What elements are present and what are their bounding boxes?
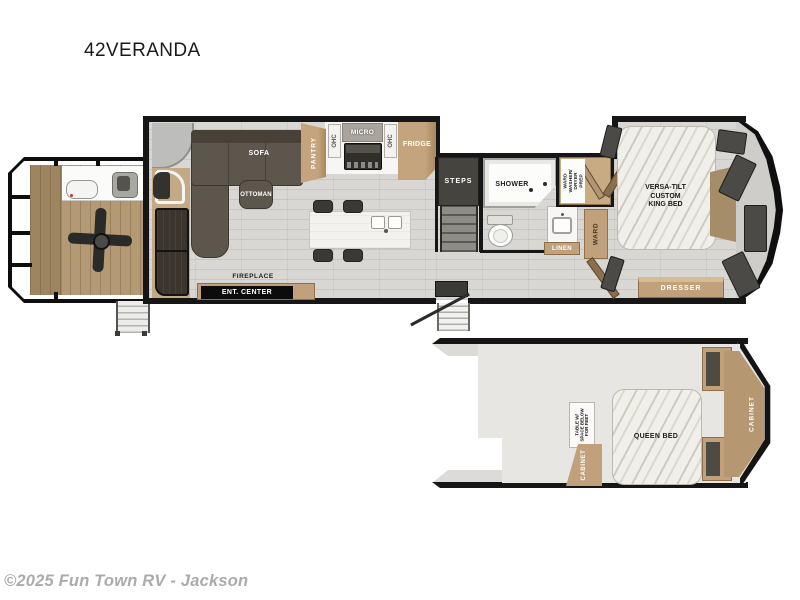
veranda-sink-basin: [117, 176, 130, 191]
page-title: 42VERANDA: [84, 40, 201, 62]
wall-bath-bottom: [480, 250, 546, 253]
bar-stool: [313, 249, 333, 262]
entry-door-divider: [157, 250, 187, 252]
ohc-right-label: OHC: [388, 134, 394, 147]
queen-bed-label: QUEEN BED: [612, 430, 700, 442]
fireplace-label: FIREPLACE: [218, 272, 288, 281]
island-sink: [388, 216, 402, 229]
stair-foot: [142, 331, 147, 336]
steps-wall-right: [479, 157, 483, 252]
bar-stool: [343, 249, 363, 262]
shelf-opening: [706, 352, 720, 386]
rail-post: [54, 292, 58, 300]
laundry-label: WARD WASHER/ DRYER PREP: [563, 169, 584, 192]
micro-label: MICRO: [342, 123, 383, 142]
shower-drain: [529, 188, 533, 192]
linen-label: LINEN: [544, 242, 580, 255]
rail-post: [10, 231, 30, 235]
rail-post: [12, 263, 32, 267]
pantry: PANTRY: [301, 123, 326, 183]
pantry-label: PANTRY: [310, 137, 317, 169]
toilet-seat: [493, 229, 508, 243]
ward-cabinet: WARD: [584, 209, 608, 259]
loft-table: TABLE W/ SPACE BELOW FOR FEET: [569, 402, 595, 448]
floorplan-image: 42VERANDA SOFA O: [0, 0, 800, 600]
entry-door: [155, 208, 189, 296]
ward-label: WARD: [593, 223, 600, 245]
king-bed-label: VERSA-TILT CUSTOM KING BED: [627, 184, 704, 210]
ohc-left-label: OHC: [332, 134, 338, 147]
veranda-stairs: [116, 301, 150, 333]
sofa-back: [191, 130, 303, 143]
bath-faucet: [561, 213, 564, 216]
wall-top-bedroom: [612, 116, 746, 122]
island-faucet: [384, 229, 388, 233]
rail-post: [54, 158, 58, 166]
loft-table-label: TABLE W/ SPACE BELOW FOR FEET: [575, 408, 589, 441]
sofa-label: SOFA: [229, 147, 289, 159]
loft-wall-top: [430, 338, 748, 344]
wall-bottom-right: [468, 298, 746, 304]
rail-post: [96, 158, 100, 166]
bath-sink: [552, 217, 572, 234]
island-sink: [371, 216, 385, 229]
rail-post: [10, 195, 30, 199]
steps-label: STEPS: [438, 157, 479, 206]
cap-window: [744, 205, 767, 252]
appliance-indicator: [70, 194, 73, 197]
ohc-right: OHC: [384, 124, 397, 158]
stove-burners: [347, 162, 378, 168]
stair-foot: [115, 331, 120, 336]
loft-cabinet-left-label: CABINET: [581, 450, 587, 481]
fridge-label: FRIDGE: [398, 138, 436, 150]
fridge: [398, 122, 436, 180]
loft-cabinet-right-label: CABINET: [749, 396, 756, 432]
ent-center-label: ENT. CENTER: [201, 286, 293, 299]
shelf-opening: [706, 442, 720, 476]
entry-window: [153, 172, 170, 199]
stove-top: [346, 145, 380, 153]
ceiling-fan-hub: [93, 233, 110, 250]
bar-stool: [313, 200, 333, 213]
ohc-left: OHC: [328, 124, 341, 158]
ottoman-label: OTTOMAN: [239, 180, 273, 209]
dresser-label: DRESSER: [638, 281, 724, 295]
cap-window: [716, 129, 748, 155]
laundry-label-strip: WARD WASHER/ DRYER PREP: [561, 159, 585, 203]
steps-treads: [440, 206, 478, 252]
veranda-deck-dark-strip: [30, 165, 62, 295]
shower-head: [543, 182, 547, 186]
bar-stool: [343, 200, 363, 213]
wall-left: [143, 116, 149, 304]
copyright-text: ©2025 Fun Town RV - Jackson: [4, 572, 248, 591]
